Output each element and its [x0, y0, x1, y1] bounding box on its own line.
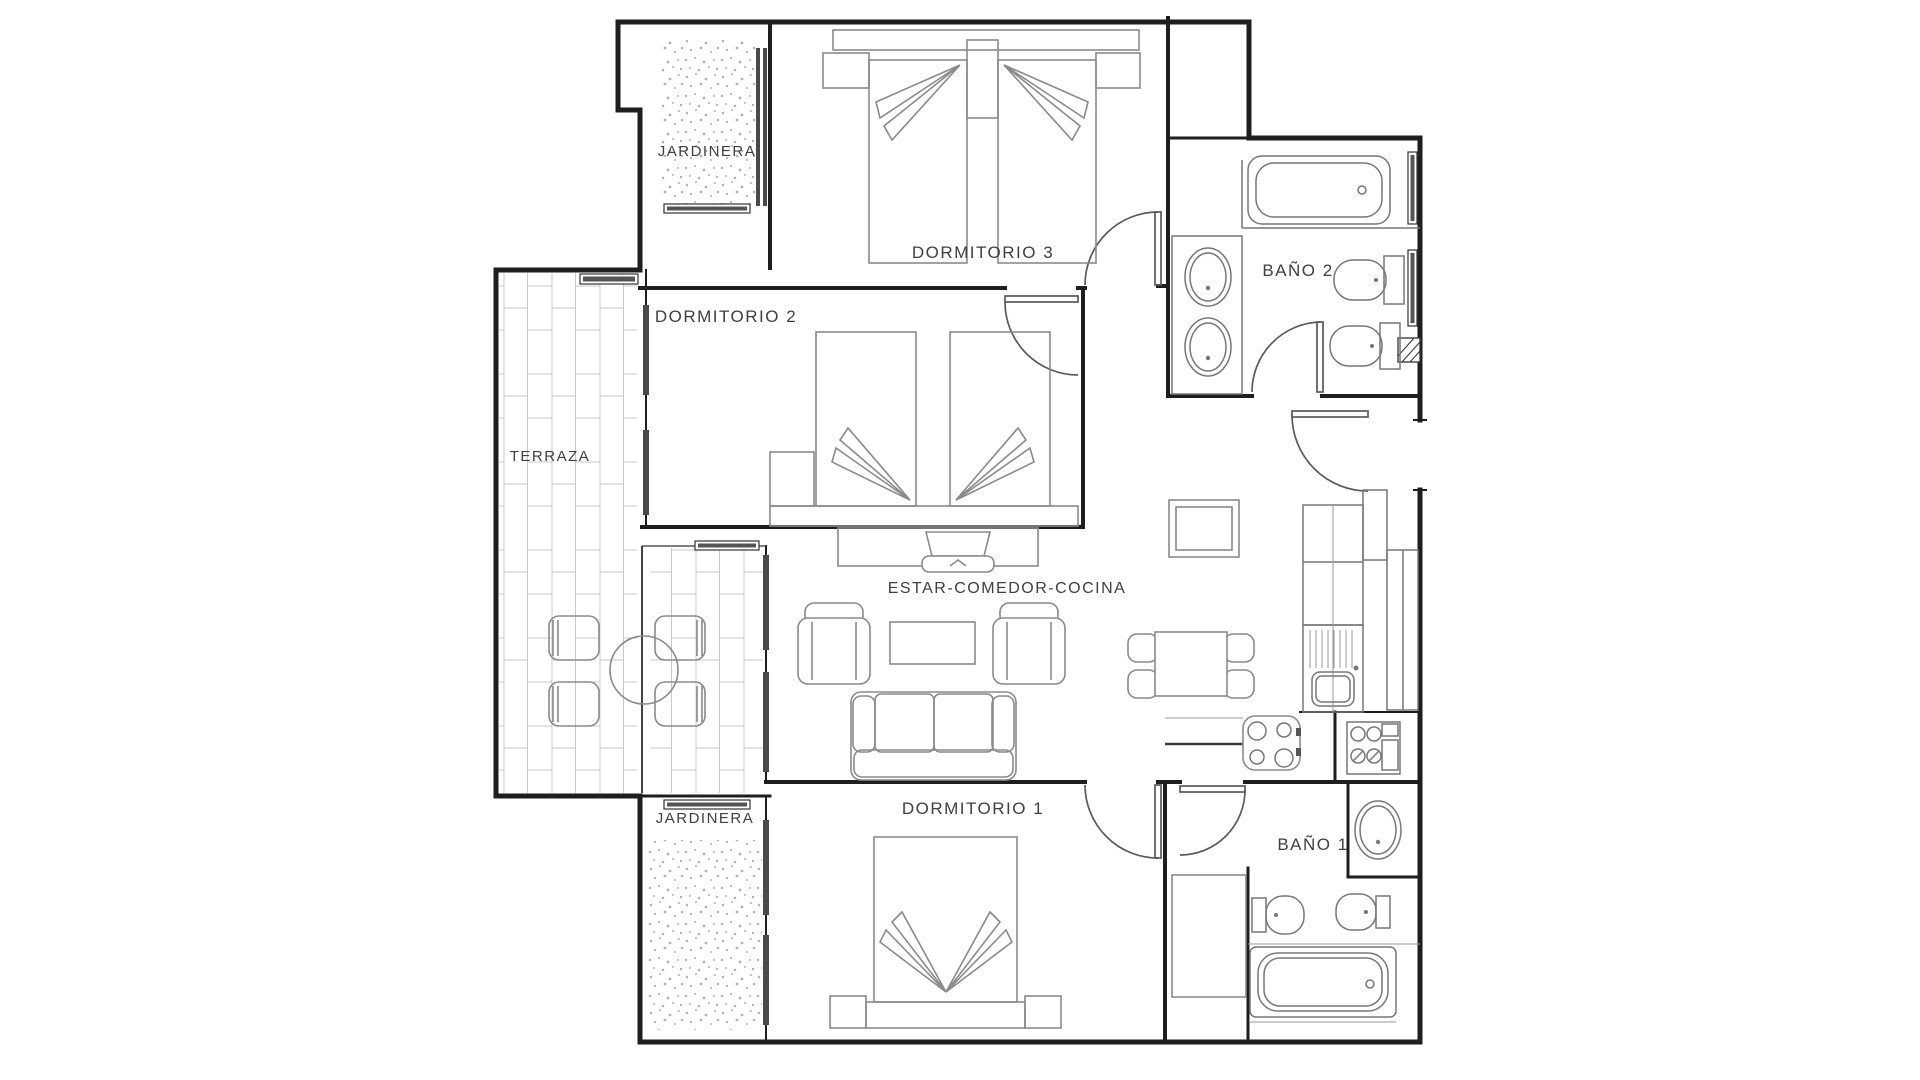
coffee-table: [890, 622, 975, 664]
doors: [1005, 212, 1368, 858]
toilet-2: [1334, 256, 1404, 304]
bidet-1: [1336, 894, 1390, 930]
label-estar-comedor-cocina: ESTAR-COMEDOR-COCINA: [888, 580, 1127, 597]
label-terraza: TERRAZA: [510, 448, 591, 465]
armchair-right: [993, 603, 1065, 684]
planter-hatch-top: [662, 40, 757, 212]
bed-double-left: [816, 332, 916, 506]
kitchen-sink: [1310, 630, 1359, 706]
floorplan-drawing: JARDINERA DORMITORIO 3 BAÑO 2 DORMITORIO…: [0, 0, 1920, 1080]
label-dormitorio-3: DORMITORIO 3: [912, 243, 1054, 262]
dormitorio-2-furniture: [770, 332, 1078, 526]
dormitorio-1-furniture: [830, 837, 1246, 1028]
bathtub-1: [1250, 947, 1396, 1022]
vanity-2: [1172, 236, 1242, 394]
hob: [1243, 716, 1301, 770]
label-dormitorio-1: DORMITORIO 1: [902, 799, 1044, 818]
label-bano-1: BAÑO 1: [1277, 835, 1348, 854]
bed-twin-2: [998, 60, 1096, 263]
door-dormitorio-1: [1085, 785, 1161, 858]
bidet-2: [1330, 323, 1400, 369]
label-jardinera-bottom: JARDINERA: [656, 810, 755, 827]
planter-hatch-bottom: [648, 840, 762, 1030]
sofa: [851, 692, 1016, 780]
toilet-1: [1252, 896, 1304, 934]
service-shaft: [1398, 338, 1420, 362]
bathtub-2: [1248, 156, 1390, 224]
bed-twin-1: [869, 60, 967, 263]
label-jardinera-top: JARDINERA: [658, 143, 757, 160]
sink-1: [1355, 801, 1401, 859]
oven-appliance: [1347, 722, 1400, 774]
door-entry: [1292, 411, 1368, 491]
dormitorio-3-furniture: [823, 30, 1140, 263]
label-bano-2: BAÑO 2: [1262, 261, 1333, 280]
tv-sideboard: [838, 528, 1038, 572]
armchair-left: [798, 603, 870, 684]
door-bano-1: [1180, 786, 1245, 855]
hall-cabinet: [1169, 500, 1239, 557]
bed-double-right: [950, 332, 1050, 506]
floorplan-page: JARDINERA DORMITORIO 3 BAÑO 2 DORMITORIO…: [0, 0, 1920, 1080]
living-room-furniture: [798, 528, 1254, 780]
label-dormitorio-2: DORMITORIO 2: [655, 307, 797, 326]
door-dormitorio-2: [1005, 296, 1078, 375]
terrace-paving: [499, 273, 763, 793]
bed-double-main: [874, 837, 1017, 1002]
dining-set: [1128, 632, 1254, 698]
door-bano-2: [1252, 322, 1323, 392]
